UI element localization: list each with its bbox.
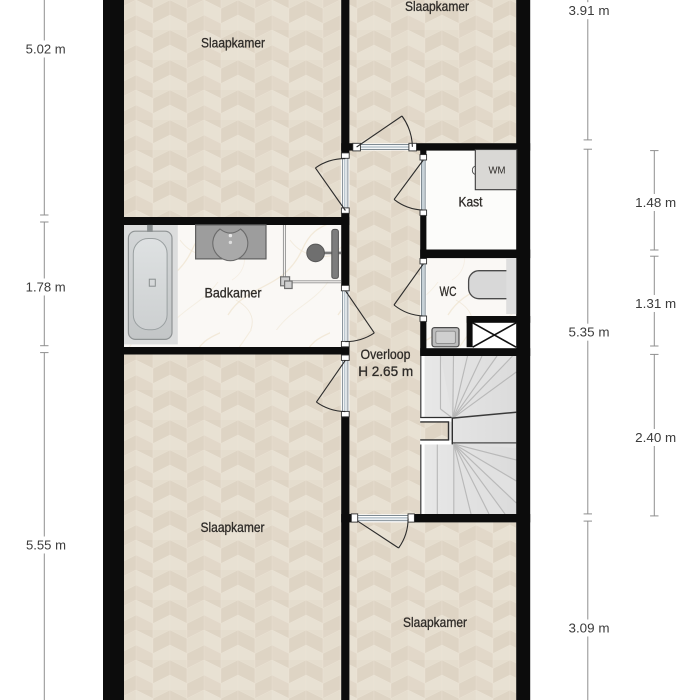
svg-text:2.40 m: 2.40 m: [635, 430, 676, 445]
svg-text:H 2.65 m: H 2.65 m: [358, 363, 413, 379]
svg-text:5.55 m: 5.55 m: [26, 537, 66, 552]
svg-text:Badkamer: Badkamer: [205, 285, 262, 301]
svg-text:Slaapkamer: Slaapkamer: [201, 519, 265, 535]
svg-text:5.35 m: 5.35 m: [569, 325, 610, 340]
svg-text:1.31 m: 1.31 m: [635, 296, 676, 311]
svg-text:Slaapkamer: Slaapkamer: [201, 34, 265, 50]
svg-text:Kast: Kast: [459, 194, 483, 210]
svg-text:Overloop: Overloop: [361, 346, 411, 362]
svg-text:1.78 m: 1.78 m: [26, 279, 66, 294]
svg-text:WC: WC: [440, 283, 457, 299]
svg-text:3.91 m: 3.91 m: [569, 3, 610, 18]
svg-text:5.02 m: 5.02 m: [26, 41, 66, 56]
svg-text:WM: WM: [489, 165, 506, 177]
svg-text:Slaapkamer: Slaapkamer: [405, 0, 469, 14]
svg-text:3.09 m: 3.09 m: [569, 620, 610, 635]
svg-text:1.48 m: 1.48 m: [635, 195, 676, 210]
svg-text:Slaapkamer: Slaapkamer: [403, 614, 467, 630]
